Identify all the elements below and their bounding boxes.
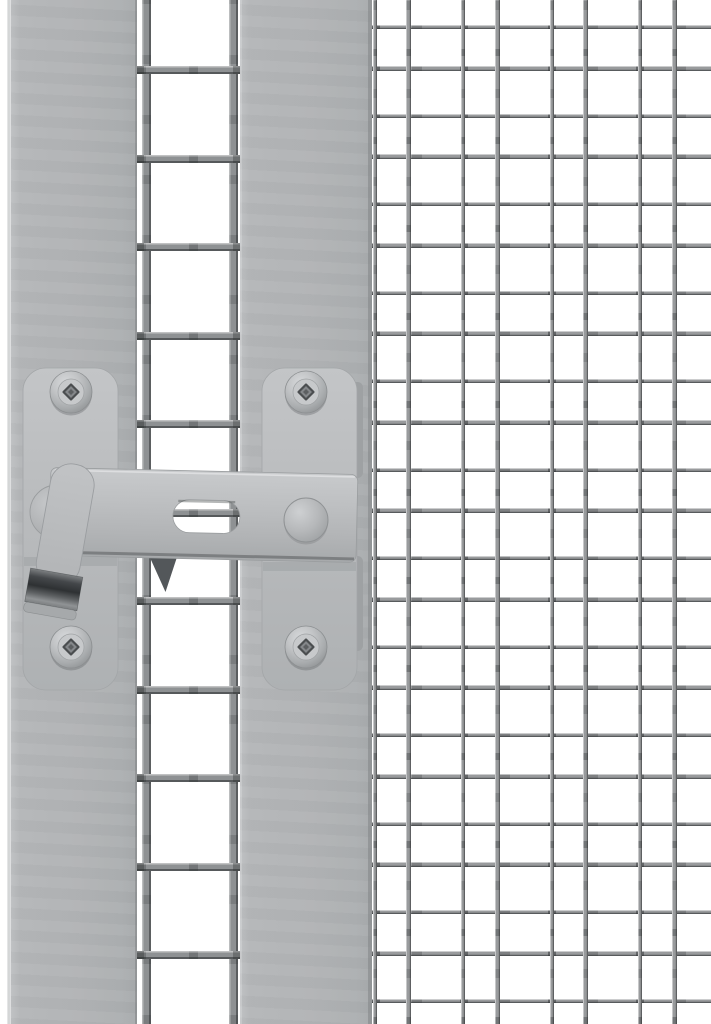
product-photo-scene [0,0,711,1024]
screw-top-right [285,371,327,416]
screw-bottom-left [50,626,92,671]
pull-knob [284,498,328,542]
bar-shadow-right [263,562,356,571]
screw-top-left [50,371,92,416]
slot-inner-shadow [178,501,235,502]
latch-assembly [0,0,711,1024]
screw-bottom-right [285,626,327,671]
